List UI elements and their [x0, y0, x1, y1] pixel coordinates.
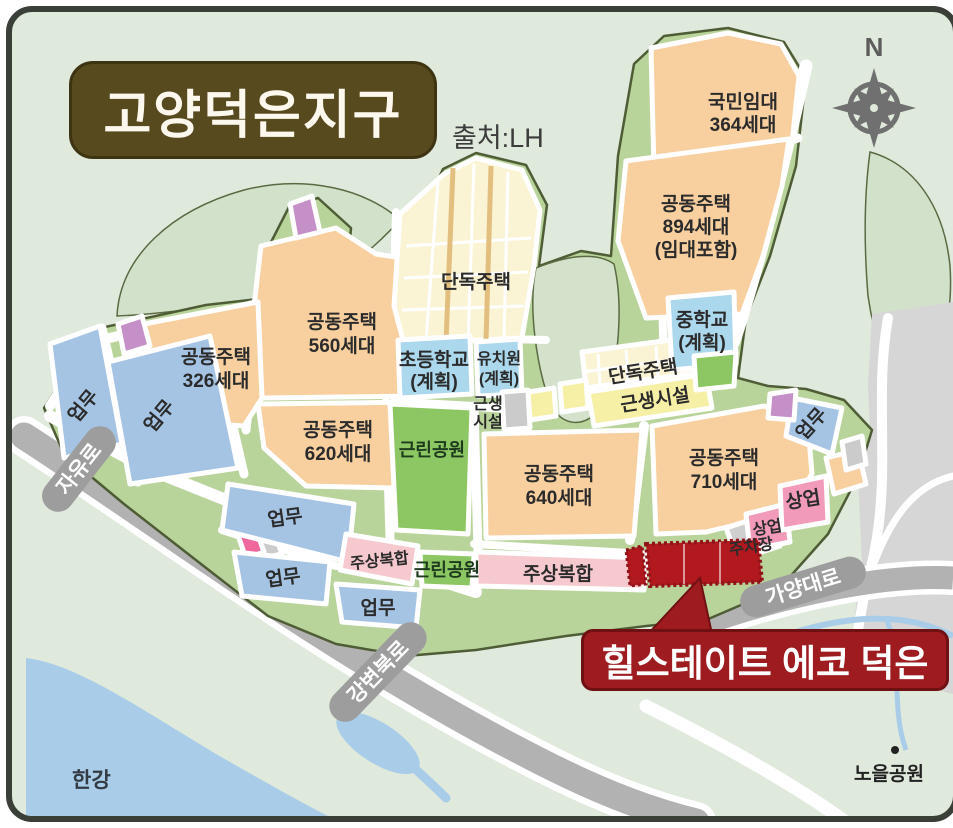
label-apt560-2: 560세대	[309, 335, 376, 357]
label-apt326-2: 326세대	[183, 370, 250, 392]
parcel-yellow-small-2	[560, 380, 588, 412]
map-title: 고양덕은지구	[103, 73, 402, 148]
noeul-park-label: 노을공원	[854, 759, 924, 786]
label-apt710-2: 710세대	[691, 471, 758, 493]
parcel-yellow-small-1	[528, 388, 556, 420]
parcel-green-under-school	[694, 352, 736, 390]
noeul-park-dot	[891, 746, 899, 754]
label-apt620-1: 공동주택	[303, 419, 373, 441]
label-neighborhood-1b: 시설	[473, 413, 502, 431]
label-kindergarten-1: 유치원	[477, 350, 521, 368]
parcel-gray-small	[842, 436, 866, 470]
callout-label: 힐스테이트 에코 덕은	[602, 633, 929, 687]
label-middle-1: 중학교	[676, 309, 728, 331]
label-apt894-2: 894세대	[663, 216, 730, 238]
compass-north-label: N	[865, 32, 884, 62]
parcel-neighborhood-1	[502, 390, 530, 430]
label-kindergarten-2: (계획)	[479, 369, 519, 388]
label-elementary-2: (계획)	[410, 371, 458, 393]
label-apt710-1: 공동주택	[689, 447, 759, 469]
label-national-rental-2: 364세대	[710, 114, 777, 136]
parcel-detached-1	[394, 158, 540, 344]
label-apt894-3: (임대포함)	[655, 239, 738, 261]
map-title-box: 고양덕은지구	[69, 61, 437, 159]
label-business-5: 업무	[361, 597, 396, 619]
label-apt640-1: 공동주택	[524, 463, 594, 485]
district-map: 자유로 강변북로 가양대로 국민임대 364세대 공동주택 894세대 (임대포…	[6, 6, 953, 822]
label-apt640-2: 640세대	[526, 487, 593, 509]
label-park-1: 근린공원	[399, 440, 465, 460]
label-apt620-2: 620세대	[305, 443, 372, 465]
label-elementary-1: 초등학교	[399, 349, 469, 371]
han-river-label: 한강	[72, 764, 111, 794]
label-detached-1: 단독주택	[441, 271, 511, 293]
label-mixed-2: 주상복합	[523, 563, 593, 585]
label-neighborhood-1a: 근생	[473, 395, 502, 413]
label-middle-2: (계획)	[678, 332, 726, 354]
parcel-purple-2	[118, 316, 150, 354]
callout-box: 힐스테이트 에코 덕은	[581, 629, 949, 691]
parcel-park-1	[390, 404, 472, 534]
compass-icon: N	[832, 32, 916, 148]
label-apt894-1: 공동주택	[661, 193, 731, 215]
parcel-purple-1	[290, 196, 320, 238]
label-apt560-1: 공동주택	[307, 311, 377, 333]
label-national-rental-1: 국민임대	[708, 91, 778, 113]
label-apt326-1: 공동주택	[181, 346, 251, 368]
parcel-purple-3	[768, 390, 796, 420]
label-park-2: 근린공원	[414, 560, 480, 580]
source-label: 출처:LH	[452, 116, 544, 155]
